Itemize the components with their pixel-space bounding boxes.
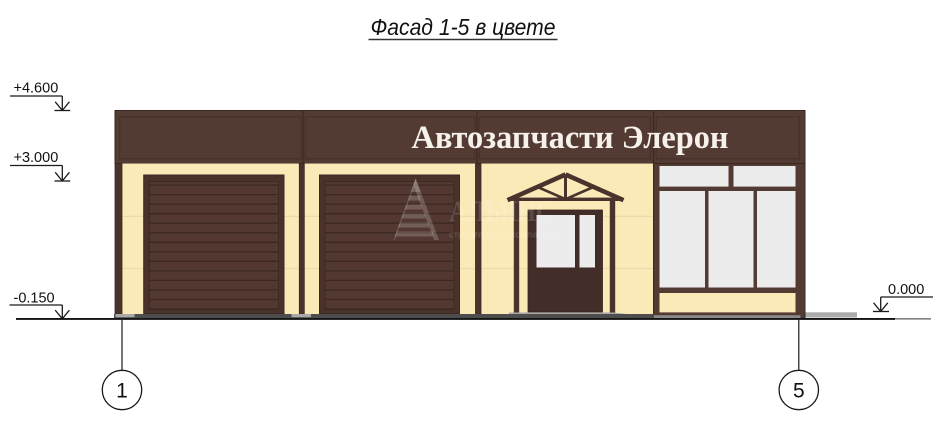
svg-text:АЛЬЯНС: АЛЬЯНС — [450, 195, 554, 228]
svg-text:Фасад 1-5 в цвете: Фасад 1-5 в цвете — [371, 14, 556, 40]
svg-text:+4.600: +4.600 — [14, 81, 59, 97]
svg-text:1: 1 — [116, 380, 128, 403]
svg-text:строительная компания: строительная компания — [449, 230, 553, 241]
svg-text:Автозапчасти Элерон: Автозапчасти Элерон — [412, 120, 729, 156]
svg-text:-0.150: -0.150 — [14, 291, 55, 307]
svg-text:+3.000: +3.000 — [14, 150, 59, 166]
svg-text:0.000: 0.000 — [888, 282, 924, 298]
svg-text:5: 5 — [793, 380, 805, 403]
